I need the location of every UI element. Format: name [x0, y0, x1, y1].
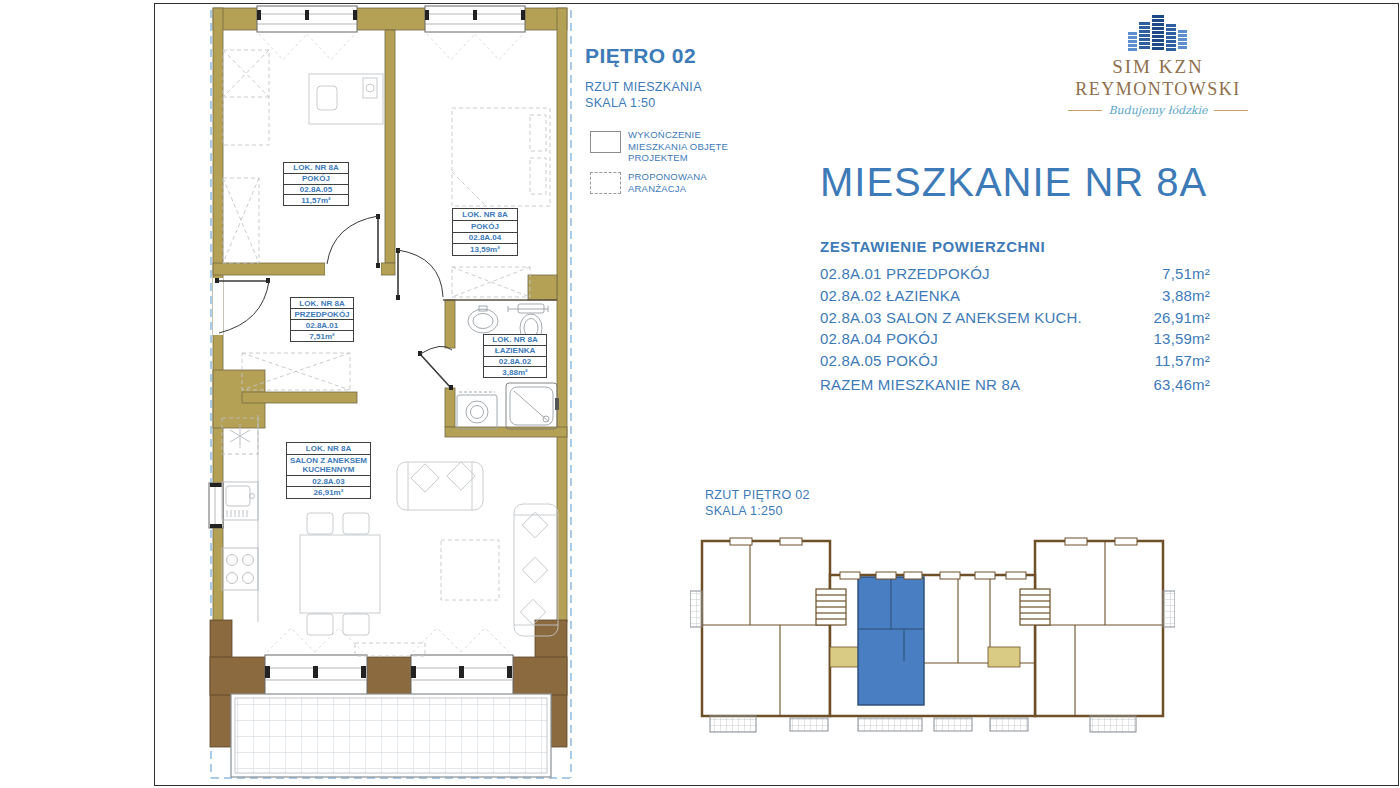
site-plan [690, 533, 1175, 740]
buildings-icon [1126, 12, 1190, 54]
area-row-label: 02.8A.05 POKÓJ [820, 350, 938, 372]
site-plan-scale: SKALA 1:250 [705, 504, 783, 518]
room-label-salon: LOK. NR 8A SALON Z ANEKSEM KUCHENNYM 02.… [286, 442, 371, 499]
room-label-cell: SALON Z ANEKSEM KUCHENNYM [287, 454, 370, 475]
room-label-cell: 02.8A.05 [284, 184, 348, 195]
room-label-pokoj-05: LOK. NR 8A POKÓJ 02.8A.05 11,57m² [283, 162, 349, 206]
logo-rule-right [1214, 110, 1248, 111]
room-label-cell: LOK. NR 8A [453, 209, 517, 220]
room-label-cell: 3,88m² [484, 366, 546, 377]
area-row: 02.8A.01 PRZEDPOKÓJ 7,51m² [820, 263, 1210, 285]
room4-door [396, 248, 443, 300]
room-label-cell: POKÓJ [284, 173, 348, 184]
area-row: 02.8A.04 POKÓJ 13,59m² [820, 328, 1210, 350]
plan-scale-label: SKALA 1:50 [585, 96, 655, 110]
room-label-przedpokoj: LOK. NR 8A PRZEDPOKÓJ 02.8A.01 7,51m² [290, 297, 354, 342]
area-row: 02.8A.05 POKÓJ 11,57m² [820, 350, 1210, 372]
area-row-label: 02.8A.02 ŁAZIENKA [820, 285, 960, 307]
floor-title: PIĘTRO 02 [585, 44, 696, 68]
legend-label-proposed: PROPONOWANA ARANŻACJA [628, 171, 707, 194]
area-row-value: 7,51m² [1162, 263, 1210, 285]
room-label-cell: LOK. NR 8A [484, 335, 546, 345]
legend-swatch-solid [590, 131, 621, 153]
room-label-cell: 26,91m² [287, 486, 370, 498]
room-label-cell: POKÓJ [453, 220, 517, 232]
legend-label-finished: WYKOŃCZENIE MIESZKANIA OBJĘTE PROJEKTEM [628, 129, 728, 164]
plan-type-label: RZUT MIESZKANIA [585, 80, 702, 94]
logo-name-line2: REYMONTOWSKI [1068, 79, 1248, 100]
site-plan-building [702, 541, 1163, 716]
area-row: 02.8A.03 SALON Z ANEKSEM KUCH. 26,91m² [820, 307, 1210, 329]
bathroom-door [418, 346, 453, 390]
area-row-value: 11,57m² [1155, 350, 1210, 372]
area-row-value: 63,46m² [1154, 374, 1210, 396]
room-label-cell: LOK. NR 8A [291, 298, 353, 308]
apartment-title: MIESZKANIE NR 8A [820, 160, 1207, 205]
company-logo: SIM KZN REYMONTOWSKI Budujemy łódzkie [1068, 12, 1248, 117]
area-row-value: 3,88m² [1162, 285, 1210, 307]
entrance-door [213, 278, 270, 335]
furniture-room4 [452, 108, 550, 297]
area-row: 02.8A.02 ŁAZIENKA 3,88m² [820, 285, 1210, 307]
area-summary-header: ZESTAWIENIE POWIERZCHNI [820, 238, 1210, 255]
logo-tagline: Budujemy łódzkie [1102, 104, 1213, 117]
floor-plan [205, 0, 580, 788]
room-label-lazienka: LOK. NR 8A ŁAZIENKA 02.8A.02 3,88m² [483, 334, 547, 378]
terrace [231, 694, 551, 777]
kitchen-fixtures [222, 415, 258, 622]
site-plan-title: RZUT PIĘTRO 02 [705, 488, 810, 502]
room-label-pokoj-04: LOK. NR 8A POKÓJ 02.8A.04 13,59m² [452, 208, 518, 256]
window-top-left [257, 6, 357, 60]
terrace-door-right [411, 628, 513, 697]
furniture-room5 [223, 50, 383, 263]
window-top-right [425, 6, 525, 60]
room-label-cell: LOK. NR 8A [284, 163, 348, 173]
legend-swatch-dashed [590, 172, 621, 194]
area-row-value: 13,59m² [1154, 328, 1210, 350]
room-label-cell: 02.8A.02 [484, 356, 546, 367]
room-label-cell: LOK. NR 8A [287, 443, 370, 454]
room-label-cell: PRZEDPOKÓJ [291, 308, 353, 319]
area-row-label: 02.8A.03 SALON Z ANEKSEM KUCH. [820, 307, 1082, 329]
room-label-cell: 7,51m² [291, 330, 353, 341]
room-label-cell: 02.8A.04 [453, 232, 517, 244]
area-row-total: RAZEM MIESZKANIE NR 8A 63,46m² [820, 374, 1210, 396]
room-label-cell: 02.8A.01 [291, 319, 353, 330]
room-label-cell: 02.8A.03 [287, 475, 370, 487]
page: { "document": { "floor_title": "PIĘTRO 0… [0, 0, 1400, 788]
logo-name-line1: SIM KZN [1068, 56, 1248, 78]
room5-door [325, 214, 381, 275]
window-kitchen-left [209, 483, 223, 528]
area-row-label: 02.8A.04 POKÓJ [820, 328, 938, 350]
site-plan-highlighted-unit [858, 577, 924, 705]
area-summary-table: ZESTAWIENIE POWIERZCHNI 02.8A.01 PRZEDPO… [820, 238, 1210, 396]
logo-rule-left [1068, 110, 1102, 111]
room-label-cell: ŁAZIENKA [484, 345, 546, 356]
area-row-label: RAZEM MIESZKANIE NR 8A [820, 374, 1020, 396]
room-label-cell: 11,57m² [284, 194, 348, 205]
room-label-cell: 13,59m² [453, 243, 517, 255]
area-row-label: 02.8A.01 PRZEDPOKÓJ [820, 263, 990, 285]
terrace-door-left [265, 628, 367, 697]
area-row-value: 26,91m² [1154, 307, 1210, 329]
